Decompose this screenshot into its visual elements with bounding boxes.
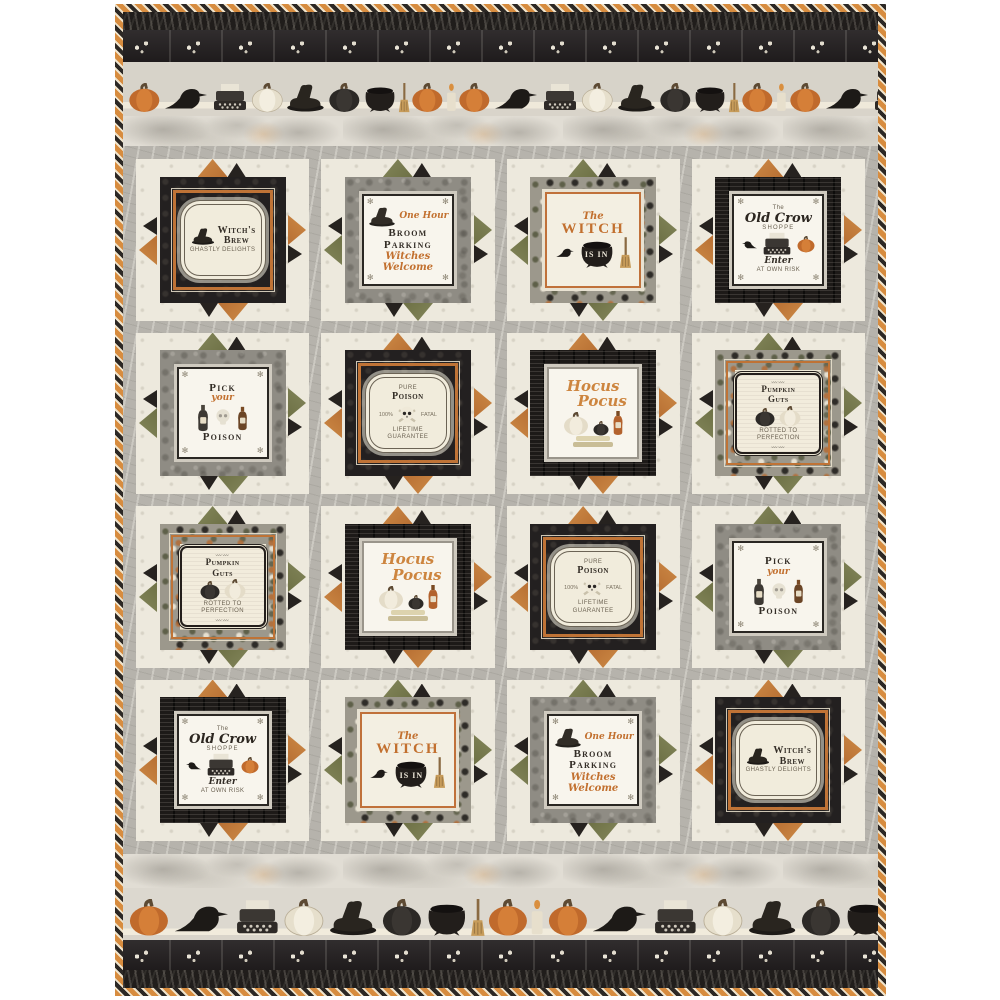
hocus-pocus-panel: Hocus Pocus bbox=[547, 367, 639, 459]
witch-hat-icon bbox=[745, 747, 771, 766]
orange-panel-frame: PURE Poison 100% FATAL LIFETIME GUARANTE… bbox=[358, 363, 458, 463]
black-damask-surround: PURE Poison 100% FATAL LIFETIME GUARANTE… bbox=[345, 350, 471, 476]
skull-crossbones-icon bbox=[395, 403, 419, 427]
quilt-block-witch-is-in: The WITCH IS IN bbox=[507, 159, 680, 321]
tonic-bottle-icon bbox=[236, 406, 249, 431]
star-point-left bbox=[139, 558, 157, 616]
star-point-left bbox=[510, 384, 528, 442]
witch-hat-icon bbox=[615, 83, 658, 113]
label-title-line2: Brew bbox=[218, 236, 256, 247]
poison-text: Poison bbox=[203, 432, 243, 444]
quilt-block-hocus-pocus: Hocus Pocus bbox=[321, 506, 494, 668]
poison-label: PURE Poison 100% FATAL LIFETIME GUARANTE… bbox=[554, 551, 632, 623]
pumpkin-icon bbox=[240, 757, 260, 774]
typewriter-icon bbox=[232, 899, 283, 937]
broom-parking-panel: ✻ ✻ ✻ ✻ One Hour Broom Parking Witches W… bbox=[362, 194, 454, 286]
label-subtext: GHASTLY DELIGHTS bbox=[746, 767, 812, 774]
star-point-top bbox=[194, 680, 252, 698]
flourish-icon: ✻ bbox=[627, 794, 634, 802]
flourish-icon: ✻ bbox=[182, 718, 189, 726]
cauldron-icon: IS IN bbox=[577, 237, 617, 269]
broom-parking-title: Broom Parking bbox=[549, 749, 637, 772]
typewriter-icon bbox=[210, 83, 250, 113]
label-title-line2: Guts bbox=[768, 395, 789, 404]
newsprint-surround: ✻ ✻ ✻ ✻ The Old Crow SHOPPE bbox=[160, 697, 286, 823]
newsprint-surround: Hocus Pocus bbox=[345, 524, 471, 650]
star-point-right bbox=[844, 558, 862, 616]
shoppe-text: SHOPPE bbox=[207, 746, 239, 753]
quilt-block-pick-poison: ✻ ✻ ✻ ✻ Pick your Poison bbox=[136, 333, 309, 495]
white-pumpkin-icon bbox=[580, 83, 615, 113]
label-subtext: AT OWN RISK bbox=[757, 267, 801, 274]
black-damask-surround: PURE Poison 100% FATAL LIFETIME GUARANTE… bbox=[530, 524, 656, 650]
flourish-icon: ✻ bbox=[182, 371, 189, 379]
flourish-icon: ✻ bbox=[182, 447, 189, 455]
quilt-block-pumpkin-guts: ﹏﹏ Pumpkin Guts ROTTED TO PERFECTION bbox=[692, 333, 865, 495]
star-point-top bbox=[564, 506, 622, 524]
flourish-icon: ✻ bbox=[813, 274, 820, 282]
star-point-bottom bbox=[749, 823, 807, 841]
star-point-bottom bbox=[379, 650, 437, 668]
star-point-top bbox=[564, 333, 622, 351]
typewriter-icon bbox=[650, 899, 701, 937]
black-pumpkin-icon bbox=[754, 408, 776, 427]
newsprint-surround: Hocus Pocus bbox=[530, 350, 656, 476]
star-point-top bbox=[564, 680, 622, 698]
witches-welcome-text: Witches Welcome bbox=[373, 251, 443, 273]
top-plank-berry-border bbox=[123, 30, 878, 62]
quilt-block-witchs-brew: Witch's Brew GHASTLY DELIGHTS bbox=[136, 159, 309, 321]
flourish-icon: ✻ bbox=[552, 794, 559, 802]
star-point-bottom bbox=[564, 823, 622, 841]
star-point-left bbox=[139, 211, 157, 269]
star-point-top bbox=[379, 159, 437, 177]
pocus-text: Pocus bbox=[392, 568, 441, 584]
star-point-left bbox=[324, 211, 342, 269]
black-pumpkin-icon bbox=[592, 421, 610, 436]
skull-crossbones-icon bbox=[580, 576, 604, 600]
flourish-icon: ✻ bbox=[257, 718, 264, 726]
star-point-right bbox=[844, 211, 862, 269]
star-point-left bbox=[324, 384, 342, 442]
left-side-text: 100% bbox=[564, 585, 578, 591]
star-point-top bbox=[749, 159, 807, 177]
quilt-block-poison: PURE Poison 100% FATAL LIFETIME GUARANTE… bbox=[321, 333, 494, 495]
guarantee-text: LIFETIME GUARANTEE bbox=[558, 600, 628, 614]
star-point-bottom bbox=[749, 476, 807, 494]
star-point-right bbox=[844, 384, 862, 442]
label-title-line1: Pumpkin bbox=[206, 558, 240, 567]
pumpkin-guts-panel: ﹏﹏ Pumpkin Guts ROTTED TO PERFECTION bbox=[180, 544, 266, 630]
star-point-top bbox=[194, 333, 252, 351]
black-damask-surround: Witch's Brew GHASTLY DELIGHTS bbox=[715, 697, 841, 823]
quilt-block-poison: PURE Poison 100% FATAL LIFETIME GUARANTE… bbox=[507, 506, 680, 668]
star-point-bottom bbox=[194, 303, 252, 321]
cauldron-icon bbox=[843, 899, 878, 937]
white-pumpkin-icon bbox=[223, 579, 247, 600]
books-icon bbox=[386, 610, 430, 622]
black-pumpkin-icon bbox=[199, 581, 221, 600]
crow-icon bbox=[162, 83, 210, 113]
pumpkin-icon bbox=[796, 236, 816, 253]
halloween-print-surround: The WITCH IS IN bbox=[530, 177, 656, 303]
cauldron-icon bbox=[692, 83, 728, 113]
bottom-motif-border bbox=[123, 888, 878, 940]
flourish-icon: ✻ bbox=[813, 198, 820, 206]
flourish-icon: ✻ bbox=[737, 621, 744, 629]
top-damask-border bbox=[123, 12, 878, 30]
crow-icon bbox=[171, 899, 232, 937]
one-hour-text: One Hour bbox=[399, 212, 448, 222]
flourish-icon: ✻ bbox=[257, 371, 264, 379]
flourish-icon: ✻ bbox=[552, 718, 559, 726]
star-point-bottom bbox=[379, 823, 437, 841]
star-point-bottom bbox=[564, 303, 622, 321]
witch-hat-icon bbox=[326, 899, 380, 937]
poison-label: PURE Poison 100% FATAL LIFETIME GUARANTE… bbox=[369, 377, 447, 449]
orange-panel-frame: ﹏﹏ Pumpkin Guts ROTTED TO PERFECTION bbox=[726, 361, 830, 465]
top-motif-border bbox=[123, 62, 878, 116]
typewriter-icon bbox=[760, 232, 794, 257]
label-subtext: GHASTLY DELIGHTS bbox=[190, 247, 256, 254]
star-point-bottom bbox=[194, 650, 252, 668]
skull-icon bbox=[212, 407, 234, 429]
broom-parking-panel: ✻ ✻ ✻ ✻ One Hour Broom Parking Witches W… bbox=[547, 714, 639, 806]
star-point-top bbox=[749, 680, 807, 698]
star-point-left bbox=[695, 384, 713, 442]
pumpkin-icon bbox=[127, 899, 171, 937]
star-point-right bbox=[659, 211, 677, 269]
star-point-top bbox=[379, 333, 437, 351]
enter-text: Enter bbox=[764, 257, 792, 267]
star-point-top bbox=[564, 159, 622, 177]
halloween-print-surround: ﹏﹏ Pumpkin Guts ROTTED TO PERFECTION bbox=[160, 524, 286, 650]
bottom-plank-ghost-border bbox=[123, 940, 878, 970]
flourish-icon: ✻ bbox=[813, 621, 820, 629]
quilt-block-broom-parking: ✻ ✻ ✻ ✻ One Hour Broom Parking Witches W… bbox=[321, 159, 494, 321]
star-point-bottom bbox=[749, 303, 807, 321]
white-pumpkin-icon bbox=[250, 83, 285, 113]
star-point-right bbox=[474, 211, 492, 269]
label-subtext: AT OWN RISK bbox=[201, 788, 245, 795]
pick-poison-panel: ✻ ✻ ✻ ✻ Pick your Poison bbox=[177, 367, 269, 459]
star-point-right bbox=[288, 558, 306, 616]
broom-icon bbox=[728, 83, 740, 113]
potion-bottle-icon bbox=[612, 410, 624, 436]
orange-panel-frame: ﹏﹏ Pumpkin Guts ROTTED TO PERFECTION bbox=[171, 535, 275, 639]
crow-icon bbox=[185, 760, 202, 771]
star-point-right bbox=[659, 558, 677, 616]
flourish-icon: ✻ bbox=[737, 274, 744, 282]
broom-icon bbox=[470, 899, 486, 937]
potion-bottle-icon bbox=[427, 584, 439, 610]
hocus-pocus-panel: Hocus Pocus bbox=[362, 541, 454, 633]
witch-hat-icon bbox=[190, 227, 216, 246]
newsprint-surround: ✻ ✻ ✻ ✻ The Old Crow SHOPPE bbox=[715, 177, 841, 303]
orange-panel-frame: Witch's Brew GHASTLY DELIGHTS bbox=[173, 190, 273, 290]
crow-icon bbox=[492, 83, 540, 113]
flourish-icon: ✻ bbox=[442, 198, 449, 206]
halloween-print-surround: The WITCH IS IN bbox=[345, 697, 471, 823]
star-point-right bbox=[474, 384, 492, 442]
pocus-text: Pocus bbox=[577, 394, 626, 410]
your-text: your bbox=[211, 394, 234, 404]
quilt-block-broom-parking: ✻ ✻ ✻ ✻ One Hour Broom Parking Witches W… bbox=[507, 680, 680, 842]
star-point-left bbox=[695, 731, 713, 789]
broom-icon bbox=[398, 83, 410, 113]
pumpkin-icon bbox=[740, 83, 775, 113]
star-point-top bbox=[194, 159, 252, 177]
star-point-left bbox=[324, 558, 342, 616]
star-point-left bbox=[139, 731, 157, 789]
witches-welcome-text: Witches Welcome bbox=[558, 772, 628, 794]
orange-panel-frame: Witch's Brew GHASTLY DELIGHTS bbox=[728, 710, 828, 810]
bottom-motif-row bbox=[123, 888, 878, 940]
star-point-left bbox=[510, 731, 528, 789]
white-pumpkin-icon bbox=[377, 586, 405, 610]
quilt-block-witchs-brew: Witch's Brew GHASTLY DELIGHTS bbox=[692, 680, 865, 842]
pumpkin-icon bbox=[127, 83, 162, 113]
halloween-print-surround: ﹏﹏ Pumpkin Guts ROTTED TO PERFECTION bbox=[715, 350, 841, 476]
right-side-text: FATAL bbox=[606, 585, 622, 591]
pumpkin-icon bbox=[410, 83, 445, 113]
halloween-panel-quilt: Witch's Brew GHASTLY DELIGHTS ✻ ✻ ✻ ✻ bbox=[115, 4, 886, 996]
star-point-right bbox=[288, 384, 306, 442]
witchs-brew-label: Witch's Brew GHASTLY DELIGHTS bbox=[184, 204, 262, 276]
flourish-icon: ✻ bbox=[627, 718, 634, 726]
flourish-icon: ✻ bbox=[737, 545, 744, 553]
star-point-top bbox=[749, 333, 807, 351]
quilt-block-pumpkin-guts: ﹏﹏ Pumpkin Guts ROTTED TO PERFECTION bbox=[136, 506, 309, 668]
flourish-icon: ✻ bbox=[257, 447, 264, 455]
star-point-right bbox=[288, 731, 306, 789]
broom-icon bbox=[619, 237, 632, 269]
poison-bottle-icon bbox=[196, 404, 210, 432]
star-point-bottom bbox=[749, 650, 807, 668]
pumpkin-guts-label: ﹏﹏ Pumpkin Guts ROTTED TO PERFECTION bbox=[735, 373, 821, 454]
old-crow-panel: ✻ ✻ ✻ ✻ The Old Crow SHOPPE bbox=[177, 714, 269, 806]
squiggle-ornament: ﹏﹏ bbox=[216, 616, 230, 622]
witch-title: WITCH bbox=[376, 742, 439, 757]
black-pumpkin-icon bbox=[407, 595, 425, 610]
star-point-bottom bbox=[564, 476, 622, 494]
flourish-icon: ✻ bbox=[257, 794, 264, 802]
white-pumpkin-icon bbox=[282, 899, 326, 937]
guarantee-text: LIFETIME GUARANTEE bbox=[373, 427, 443, 441]
skull-icon bbox=[768, 581, 790, 603]
black-pumpkin-icon bbox=[658, 83, 693, 113]
page-background: Witch's Brew GHASTLY DELIGHTS ✻ ✻ ✻ ✻ bbox=[0, 0, 1000, 1000]
star-point-right bbox=[288, 211, 306, 269]
pumpkin-guts-panel: ﹏﹏ Pumpkin Guts ROTTED TO PERFECTION bbox=[735, 370, 821, 456]
gray-damask-surround: ✻ ✻ ✻ ✻ One Hour Broom Parking Witches W… bbox=[345, 177, 471, 303]
old-crow-title: Old Crow bbox=[189, 733, 256, 746]
label-subtext: ROTTED TO PERFECTION bbox=[187, 601, 259, 615]
top-smoke-border bbox=[123, 116, 878, 146]
star-point-top bbox=[379, 506, 437, 524]
crow-icon bbox=[741, 239, 758, 250]
star-point-bottom bbox=[379, 303, 437, 321]
witch-hat-icon bbox=[745, 899, 799, 937]
crow-icon bbox=[823, 83, 871, 113]
star-point-right bbox=[659, 384, 677, 442]
gray-damask-surround: ✻ ✻ ✻ ✻ One Hour Broom Parking Witches W… bbox=[530, 697, 656, 823]
left-side-text: 100% bbox=[379, 412, 393, 418]
witch-is-in-panel: The WITCH IS IN bbox=[360, 712, 456, 808]
typewriter-icon bbox=[204, 753, 238, 778]
pumpkin-icon bbox=[546, 899, 590, 937]
star-point-bottom bbox=[564, 650, 622, 668]
star-point-right bbox=[659, 731, 677, 789]
star-point-left bbox=[510, 211, 528, 269]
star-point-top bbox=[379, 680, 437, 698]
star-point-bottom bbox=[379, 476, 437, 494]
pumpkin-icon bbox=[486, 899, 530, 937]
one-hour-text: One Hour bbox=[585, 733, 634, 743]
flourish-icon: ✻ bbox=[367, 198, 374, 206]
witch-title: WITCH bbox=[561, 222, 624, 237]
star-point-right bbox=[474, 731, 492, 789]
white-pumpkin-icon bbox=[562, 412, 590, 436]
witchs-brew-label: Witch's Brew GHASTLY DELIGHTS bbox=[739, 724, 817, 796]
label-title-line2: Brew bbox=[773, 757, 811, 768]
cauldron-icon: IS IN bbox=[391, 757, 431, 789]
witch-hat-icon bbox=[284, 83, 327, 113]
typewriter-icon bbox=[540, 83, 580, 113]
poison-title: Poison bbox=[392, 392, 424, 403]
flourish-icon: ✻ bbox=[182, 794, 189, 802]
broom-parking-title: Broom Parking bbox=[364, 228, 452, 251]
bottom-smoke-border bbox=[123, 854, 878, 888]
enter-text: Enter bbox=[209, 778, 237, 788]
black-pumpkin-icon bbox=[327, 83, 362, 113]
flourish-icon: ✻ bbox=[737, 198, 744, 206]
star-point-top bbox=[749, 506, 807, 524]
flourish-icon: ✻ bbox=[367, 274, 374, 282]
white-pumpkin-icon bbox=[701, 899, 745, 937]
right-side-text: FATAL bbox=[421, 412, 437, 418]
typewriter-icon bbox=[871, 83, 878, 113]
black-damask-surround: Witch's Brew GHASTLY DELIGHTS bbox=[160, 177, 286, 303]
witch-hat-icon bbox=[367, 206, 397, 228]
candle-icon bbox=[529, 899, 545, 937]
label-title-line2: Guts bbox=[212, 569, 233, 578]
pumpkin-guts-label: ﹏﹏ Pumpkin Guts ROTTED TO PERFECTION bbox=[180, 546, 266, 627]
gray-damask-surround: ✻ ✻ ✻ ✻ Pick your Poison bbox=[160, 350, 286, 476]
cauldron-icon bbox=[362, 83, 398, 113]
flourish-icon: ✻ bbox=[813, 545, 820, 553]
white-pumpkin-icon bbox=[778, 406, 802, 427]
crow-icon bbox=[589, 899, 650, 937]
tonic-bottle-icon bbox=[792, 579, 805, 604]
star-point-right bbox=[474, 558, 492, 616]
star-point-left bbox=[510, 558, 528, 616]
witch-is-in-panel: The WITCH IS IN bbox=[545, 192, 641, 288]
your-text: your bbox=[767, 568, 790, 578]
crow-icon bbox=[555, 246, 575, 259]
star-point-right bbox=[844, 731, 862, 789]
star-point-bottom bbox=[194, 476, 252, 494]
old-crow-panel: ✻ ✻ ✻ ✻ The Old Crow SHOPPE bbox=[732, 194, 824, 286]
star-point-left bbox=[695, 211, 713, 269]
books-icon bbox=[571, 436, 615, 448]
star-point-top bbox=[194, 506, 252, 524]
poison-title: Poison bbox=[577, 566, 609, 577]
shoppe-text: SHOPPE bbox=[762, 225, 794, 232]
quilt-block-witch-is-in: The WITCH IS IN bbox=[321, 680, 494, 842]
flourish-icon: ✻ bbox=[442, 274, 449, 282]
star-point-bottom bbox=[194, 823, 252, 841]
poison-text: Poison bbox=[759, 606, 799, 618]
broom-icon bbox=[433, 757, 446, 789]
star-point-left bbox=[324, 731, 342, 789]
quilt-interior: Witch's Brew GHASTLY DELIGHTS ✻ ✻ ✻ ✻ bbox=[123, 12, 878, 988]
pick-poison-panel: ✻ ✻ ✻ ✻ Pick your Poison bbox=[732, 541, 824, 633]
black-pumpkin-icon bbox=[380, 899, 424, 937]
black-pumpkin-icon bbox=[799, 899, 843, 937]
star-point-left bbox=[695, 558, 713, 616]
label-title-line1: Pumpkin bbox=[761, 385, 795, 394]
star-point-left bbox=[139, 384, 157, 442]
quilt-block-hocus-pocus: Hocus Pocus bbox=[507, 333, 680, 495]
quilt-block-old-crow: ✻ ✻ ✻ ✻ The Old Crow SHOPPE bbox=[136, 680, 309, 842]
poison-bottle-icon bbox=[752, 578, 766, 606]
pumpkin-icon bbox=[788, 83, 823, 113]
candle-icon bbox=[775, 83, 788, 113]
orange-panel-frame: PURE Poison 100% FATAL LIFETIME GUARANTE… bbox=[543, 537, 643, 637]
old-crow-title: Old Crow bbox=[745, 212, 812, 225]
label-subtext: ROTTED TO PERFECTION bbox=[742, 428, 814, 442]
witch-hat-icon bbox=[553, 727, 583, 749]
pumpkin-icon bbox=[457, 83, 492, 113]
quilt-block-grid: Witch's Brew GHASTLY DELIGHTS ✻ ✻ ✻ ✻ bbox=[123, 146, 878, 854]
candle-icon bbox=[445, 83, 458, 113]
cauldron-icon bbox=[424, 899, 470, 937]
crow-icon bbox=[369, 767, 389, 780]
quilt-block-old-crow: ✻ ✻ ✻ ✻ The Old Crow SHOPPE bbox=[692, 159, 865, 321]
gray-damask-surround: ✻ ✻ ✻ ✻ Pick your Poison bbox=[715, 524, 841, 650]
top-motif-row bbox=[123, 62, 878, 116]
squiggle-ornament: ﹏﹏ bbox=[771, 443, 785, 449]
bottom-damask-border bbox=[123, 970, 878, 988]
quilt-block-pick-poison: ✻ ✻ ✻ ✻ Pick your Poison bbox=[692, 506, 865, 668]
